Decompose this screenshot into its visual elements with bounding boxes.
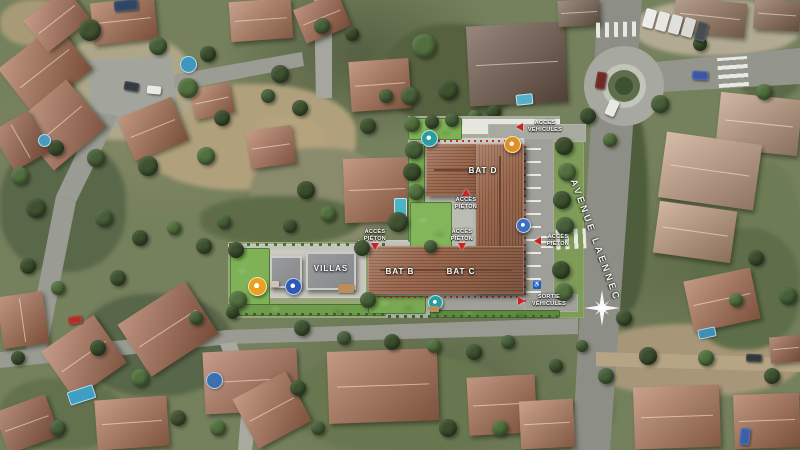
red-arrow-right-icon bbox=[518, 297, 525, 305]
red-arrow-down-icon bbox=[458, 243, 466, 250]
tree bbox=[403, 163, 421, 181]
terrain-patch bbox=[552, 376, 616, 440]
red-arrow-left-icon bbox=[516, 123, 523, 131]
tree bbox=[580, 108, 596, 124]
terrain-patch bbox=[588, 324, 800, 396]
tree bbox=[779, 287, 797, 305]
car bbox=[668, 14, 684, 35]
house-roof bbox=[41, 315, 127, 399]
tree bbox=[384, 334, 400, 350]
tree bbox=[555, 283, 573, 301]
tree bbox=[616, 310, 632, 326]
crosswalk bbox=[596, 21, 638, 37]
site-path bbox=[358, 240, 422, 250]
house-roof bbox=[672, 0, 747, 38]
tree bbox=[292, 100, 308, 116]
roof-ridge bbox=[235, 17, 287, 22]
terrain-patch bbox=[386, 24, 518, 126]
tree bbox=[87, 149, 105, 167]
tree bbox=[651, 95, 669, 113]
tree bbox=[26, 198, 46, 218]
star-spike bbox=[584, 290, 620, 326]
roof-ridge bbox=[337, 383, 429, 387]
terrain-patch bbox=[288, 354, 510, 450]
roof-ridge bbox=[725, 119, 794, 127]
planting-row bbox=[524, 146, 526, 306]
house-roof bbox=[733, 393, 800, 449]
tree bbox=[196, 238, 212, 254]
house-roof bbox=[769, 335, 800, 364]
roof-ridge bbox=[355, 82, 405, 87]
road bbox=[0, 0, 800, 450]
roof-ridge bbox=[694, 293, 750, 306]
house-roof bbox=[14, 79, 106, 170]
site-lawn bbox=[368, 296, 426, 314]
red-arrow-down-icon bbox=[371, 243, 379, 250]
site-parcel bbox=[0, 0, 800, 450]
roof-ridge bbox=[499, 156, 501, 280]
tree bbox=[405, 141, 423, 159]
roof-ridge bbox=[680, 13, 740, 20]
house-roof bbox=[348, 58, 411, 112]
tree bbox=[290, 380, 306, 396]
tree bbox=[95, 209, 113, 227]
car bbox=[147, 85, 162, 94]
house-roof bbox=[0, 23, 92, 114]
tree bbox=[466, 344, 482, 360]
tree bbox=[200, 46, 216, 62]
vegetation bbox=[0, 0, 800, 450]
villa-building bbox=[306, 252, 356, 290]
tree bbox=[639, 347, 657, 365]
houses bbox=[0, 0, 800, 450]
road bbox=[0, 0, 800, 450]
house-roof bbox=[653, 201, 737, 263]
pedestrian-access-annotation: ACCÈS PIÉTON bbox=[446, 189, 486, 210]
site-path bbox=[430, 294, 578, 312]
vehicle-entry-label: ACCÈS VÉHICULES bbox=[525, 120, 565, 133]
house-roof bbox=[117, 97, 188, 161]
vehicle-entry-annotation: ACCÈS VÉHICULES bbox=[516, 120, 565, 133]
tree bbox=[149, 37, 167, 55]
tree bbox=[492, 420, 508, 436]
roof-ridge bbox=[212, 378, 291, 383]
roof-ridge bbox=[758, 13, 797, 17]
house-roof bbox=[0, 111, 51, 172]
site-path bbox=[488, 124, 586, 142]
tree bbox=[427, 339, 441, 353]
terrain-patch bbox=[728, 162, 800, 294]
tree bbox=[297, 181, 315, 199]
planting-row bbox=[526, 148, 541, 294]
parasol bbox=[428, 295, 443, 310]
tree bbox=[79, 19, 101, 41]
roof-ridge bbox=[37, 106, 81, 143]
house-roof bbox=[229, 0, 294, 42]
tree bbox=[229, 291, 247, 309]
house-roof bbox=[633, 385, 721, 450]
building-label-bat-c: BAT C bbox=[441, 267, 481, 276]
roof-ridge bbox=[19, 298, 26, 341]
roof-ridge bbox=[130, 119, 176, 138]
tree bbox=[294, 320, 310, 336]
tree bbox=[214, 110, 230, 126]
tree bbox=[555, 137, 573, 155]
car bbox=[113, 0, 138, 12]
roof-ridge bbox=[380, 269, 511, 271]
tree bbox=[439, 419, 457, 437]
planting-row bbox=[229, 243, 385, 246]
house-roof bbox=[466, 21, 568, 106]
road bbox=[0, 0, 800, 450]
tree bbox=[693, 37, 707, 51]
tree bbox=[764, 368, 780, 384]
house-roof bbox=[90, 0, 158, 45]
house-roof bbox=[293, 0, 351, 44]
roof-ridge bbox=[139, 310, 196, 347]
tree bbox=[425, 115, 439, 129]
roundabout-circle bbox=[608, 70, 640, 102]
tree bbox=[311, 421, 325, 435]
car bbox=[746, 354, 762, 363]
roof-ridge bbox=[303, 10, 341, 26]
pedestrian-access-label: ACCÈS PIÉTON bbox=[442, 229, 482, 242]
house-roof bbox=[232, 371, 311, 449]
house-roof bbox=[658, 132, 762, 211]
tree bbox=[438, 80, 458, 100]
car bbox=[550, 250, 560, 266]
red-arrow-left-icon bbox=[534, 237, 541, 245]
tree bbox=[345, 27, 359, 41]
building-label-bat-b: BAT B bbox=[380, 267, 420, 276]
site-lawn bbox=[410, 202, 452, 248]
tree bbox=[51, 281, 65, 295]
pedestrian-access-annotation: ACCÈS PIÉTON bbox=[534, 234, 573, 247]
tree bbox=[271, 65, 289, 83]
terrace-table bbox=[338, 284, 354, 293]
site-path bbox=[462, 119, 560, 134]
roof-ridge bbox=[561, 11, 596, 14]
red-arrow-up-icon bbox=[462, 189, 470, 196]
tree bbox=[261, 89, 275, 103]
house-roof bbox=[519, 399, 575, 450]
roof-ridge bbox=[252, 143, 290, 149]
roof-ridge bbox=[39, 5, 75, 34]
planting-row bbox=[372, 296, 520, 298]
roof-ridge bbox=[434, 169, 516, 171]
car bbox=[547, 182, 557, 199]
aerial-site-plan-map: ♿ BAT D BAT B BAT C VILLAS ACCÈS VÉHICUL… bbox=[0, 0, 800, 450]
tree bbox=[138, 156, 158, 176]
roof-ridge bbox=[524, 422, 569, 425]
tree bbox=[360, 118, 376, 134]
vehicle-exit-label: SORTIE VÉHICULES bbox=[527, 294, 571, 307]
tree bbox=[228, 242, 244, 258]
terrain-patch bbox=[602, 94, 648, 312]
tree bbox=[217, 215, 231, 229]
terrain-patch bbox=[0, 0, 72, 46]
house-roof bbox=[683, 267, 760, 332]
terrain-patch bbox=[246, 114, 328, 186]
parasol bbox=[421, 130, 438, 147]
road bbox=[0, 0, 800, 450]
plan-annotations: BAT D BAT B BAT C VILLAS ACCÈS VÉHICULES… bbox=[0, 0, 800, 450]
tree bbox=[556, 217, 574, 235]
car bbox=[739, 428, 751, 446]
tree bbox=[424, 240, 437, 253]
house-roof bbox=[715, 92, 800, 156]
swimming-pool bbox=[38, 134, 51, 147]
tree bbox=[110, 270, 126, 286]
tree bbox=[487, 105, 501, 119]
car bbox=[655, 11, 671, 32]
house-roof bbox=[94, 396, 169, 450]
tree bbox=[226, 306, 239, 319]
site-parcel bbox=[0, 0, 800, 450]
tree bbox=[360, 292, 376, 308]
pedestrian-access-label: ACCÈS PIÉTON bbox=[543, 234, 573, 247]
tree bbox=[501, 335, 515, 349]
terrain-patch bbox=[738, 54, 800, 100]
street-name-label: AVENUE LAENNEC bbox=[567, 177, 622, 305]
site-lawn bbox=[408, 144, 425, 242]
terrain-patch bbox=[80, 294, 232, 396]
tree bbox=[549, 359, 563, 373]
site-path bbox=[228, 244, 386, 251]
tree bbox=[553, 191, 571, 209]
vehicle-exit-annotation: SORTIE VÉHICULES bbox=[518, 294, 571, 307]
house-roof bbox=[0, 291, 49, 349]
tree bbox=[468, 110, 480, 122]
site-path bbox=[426, 138, 524, 146]
terrain-patch bbox=[0, 378, 122, 450]
villa-building bbox=[270, 256, 302, 288]
house-roof bbox=[467, 374, 538, 435]
tree bbox=[379, 89, 393, 103]
accessible-parking-marker: ♿ bbox=[533, 281, 541, 289]
car bbox=[68, 315, 83, 325]
tree bbox=[404, 116, 420, 132]
apartment-building-roof bbox=[476, 144, 524, 292]
road bbox=[0, 0, 800, 450]
car bbox=[123, 81, 139, 92]
roof-ridge bbox=[102, 420, 162, 425]
roof-ridge bbox=[773, 347, 800, 350]
planting-row bbox=[229, 313, 385, 316]
roundabout-circle bbox=[584, 46, 664, 126]
vehicles bbox=[0, 0, 800, 450]
swimming-pool bbox=[180, 56, 197, 73]
tree bbox=[401, 87, 419, 105]
roof-ridge bbox=[97, 17, 151, 24]
tree bbox=[50, 420, 66, 436]
house-roof bbox=[202, 348, 299, 415]
planting-row bbox=[541, 236, 553, 248]
car bbox=[604, 99, 620, 118]
roof-ridge bbox=[663, 226, 728, 236]
apartment-building-roof bbox=[368, 246, 524, 294]
tree bbox=[320, 206, 336, 222]
car bbox=[595, 71, 608, 89]
terrain bbox=[0, 0, 800, 450]
swimming-pool bbox=[697, 326, 717, 340]
car bbox=[570, 282, 580, 298]
tree bbox=[197, 147, 215, 165]
tree bbox=[189, 311, 203, 325]
terrain-patch bbox=[55, 34, 195, 140]
roof-ridge bbox=[473, 403, 530, 407]
house-roof bbox=[343, 157, 411, 223]
house-roof bbox=[118, 281, 219, 377]
tree bbox=[132, 230, 148, 246]
house-roof bbox=[23, 0, 90, 52]
roof-ridge bbox=[20, 49, 70, 88]
road bbox=[0, 0, 800, 450]
tree bbox=[314, 18, 330, 34]
tree bbox=[210, 420, 226, 436]
tree bbox=[445, 113, 459, 127]
site-lawn bbox=[430, 310, 560, 318]
house-roof bbox=[557, 0, 600, 27]
pedestrian-access-label: ACCÈS PIÉTON bbox=[446, 197, 486, 210]
car bbox=[681, 17, 697, 38]
tree bbox=[131, 369, 149, 387]
tree bbox=[408, 184, 424, 200]
pools bbox=[0, 0, 800, 450]
roof-ridge bbox=[349, 188, 404, 191]
terrain-patch bbox=[138, 84, 356, 190]
site-lawn bbox=[230, 248, 270, 306]
car bbox=[694, 21, 710, 42]
roof-ridge bbox=[670, 164, 750, 176]
development-site-overlay: ♿ bbox=[0, 0, 800, 450]
road bbox=[0, 0, 800, 450]
terrace-table bbox=[270, 281, 279, 287]
building-label-bat-d: BAT D bbox=[461, 166, 505, 175]
tree bbox=[603, 133, 617, 147]
roof-ridge bbox=[249, 397, 294, 422]
swimming-pool bbox=[206, 372, 223, 389]
road bbox=[0, 0, 800, 450]
apartment-building-roof bbox=[426, 144, 524, 196]
swimming-pool bbox=[66, 384, 96, 406]
tree bbox=[48, 140, 64, 156]
site-path bbox=[552, 124, 584, 318]
tree bbox=[598, 368, 614, 384]
roads bbox=[0, 0, 800, 450]
car bbox=[692, 70, 709, 80]
tree bbox=[388, 212, 408, 232]
roof-ridge bbox=[641, 415, 713, 419]
roof-ridge bbox=[61, 341, 106, 373]
planting-row bbox=[426, 140, 522, 142]
swimming-pool bbox=[515, 93, 533, 106]
tree bbox=[170, 410, 186, 426]
site-path bbox=[268, 250, 366, 298]
swimming-pool bbox=[394, 198, 407, 222]
star-spike bbox=[588, 294, 616, 322]
house-roof bbox=[0, 394, 60, 450]
tree bbox=[11, 351, 25, 365]
tree bbox=[748, 250, 764, 266]
site-path bbox=[426, 192, 478, 196]
site-lawn bbox=[408, 118, 462, 140]
crosswalk bbox=[717, 56, 749, 88]
road bbox=[0, 0, 800, 450]
roof-ridge bbox=[739, 419, 794, 422]
tree bbox=[354, 240, 370, 256]
roof-ridge bbox=[5, 415, 48, 431]
tree bbox=[698, 350, 714, 366]
house-roof bbox=[189, 82, 234, 120]
terrain-patch bbox=[200, 196, 360, 244]
house-roof bbox=[753, 0, 800, 32]
tree bbox=[576, 340, 588, 352]
tree bbox=[756, 84, 772, 100]
roof-ridge bbox=[476, 61, 558, 66]
tree bbox=[11, 167, 29, 185]
tree bbox=[167, 221, 181, 235]
parasol bbox=[516, 218, 531, 233]
terrace-table bbox=[430, 306, 439, 312]
compass-star-icon bbox=[584, 290, 620, 326]
pedestrian-access-label: ACCÈS PIÉTON bbox=[354, 229, 396, 242]
house-roof bbox=[246, 125, 297, 169]
tree bbox=[337, 331, 351, 345]
roof-ridge bbox=[10, 124, 30, 158]
tree bbox=[178, 78, 198, 98]
tree bbox=[90, 340, 106, 356]
tree bbox=[283, 219, 297, 233]
pedestrian-access-annotation: ACCÈS PIÉTON bbox=[442, 229, 482, 250]
site-lawn bbox=[228, 304, 386, 316]
tree bbox=[412, 34, 436, 58]
roundabout-circle bbox=[602, 64, 646, 108]
site-path bbox=[408, 194, 478, 248]
terrain-patch bbox=[634, 0, 800, 56]
parasol bbox=[504, 136, 521, 153]
car bbox=[642, 8, 658, 29]
house-roof bbox=[327, 348, 439, 424]
tree bbox=[558, 163, 576, 181]
pedestrian-access-annotation: ACCÈS PIÉTON bbox=[354, 229, 396, 250]
parasol bbox=[285, 278, 302, 295]
site-path bbox=[524, 138, 554, 310]
roundabout-circle bbox=[615, 77, 633, 95]
terrain-patch bbox=[688, 228, 800, 350]
road bbox=[0, 0, 800, 450]
planting-row bbox=[388, 315, 558, 318]
tree bbox=[729, 293, 743, 307]
tree bbox=[552, 261, 570, 279]
crosswalk bbox=[555, 228, 586, 250]
tree bbox=[20, 258, 36, 274]
parasol bbox=[248, 277, 267, 296]
roof-ridge bbox=[195, 97, 228, 105]
building-label-villas: VILLAS bbox=[306, 264, 356, 273]
terrain-patch bbox=[250, 148, 392, 244]
terrain-patch bbox=[0, 140, 126, 272]
